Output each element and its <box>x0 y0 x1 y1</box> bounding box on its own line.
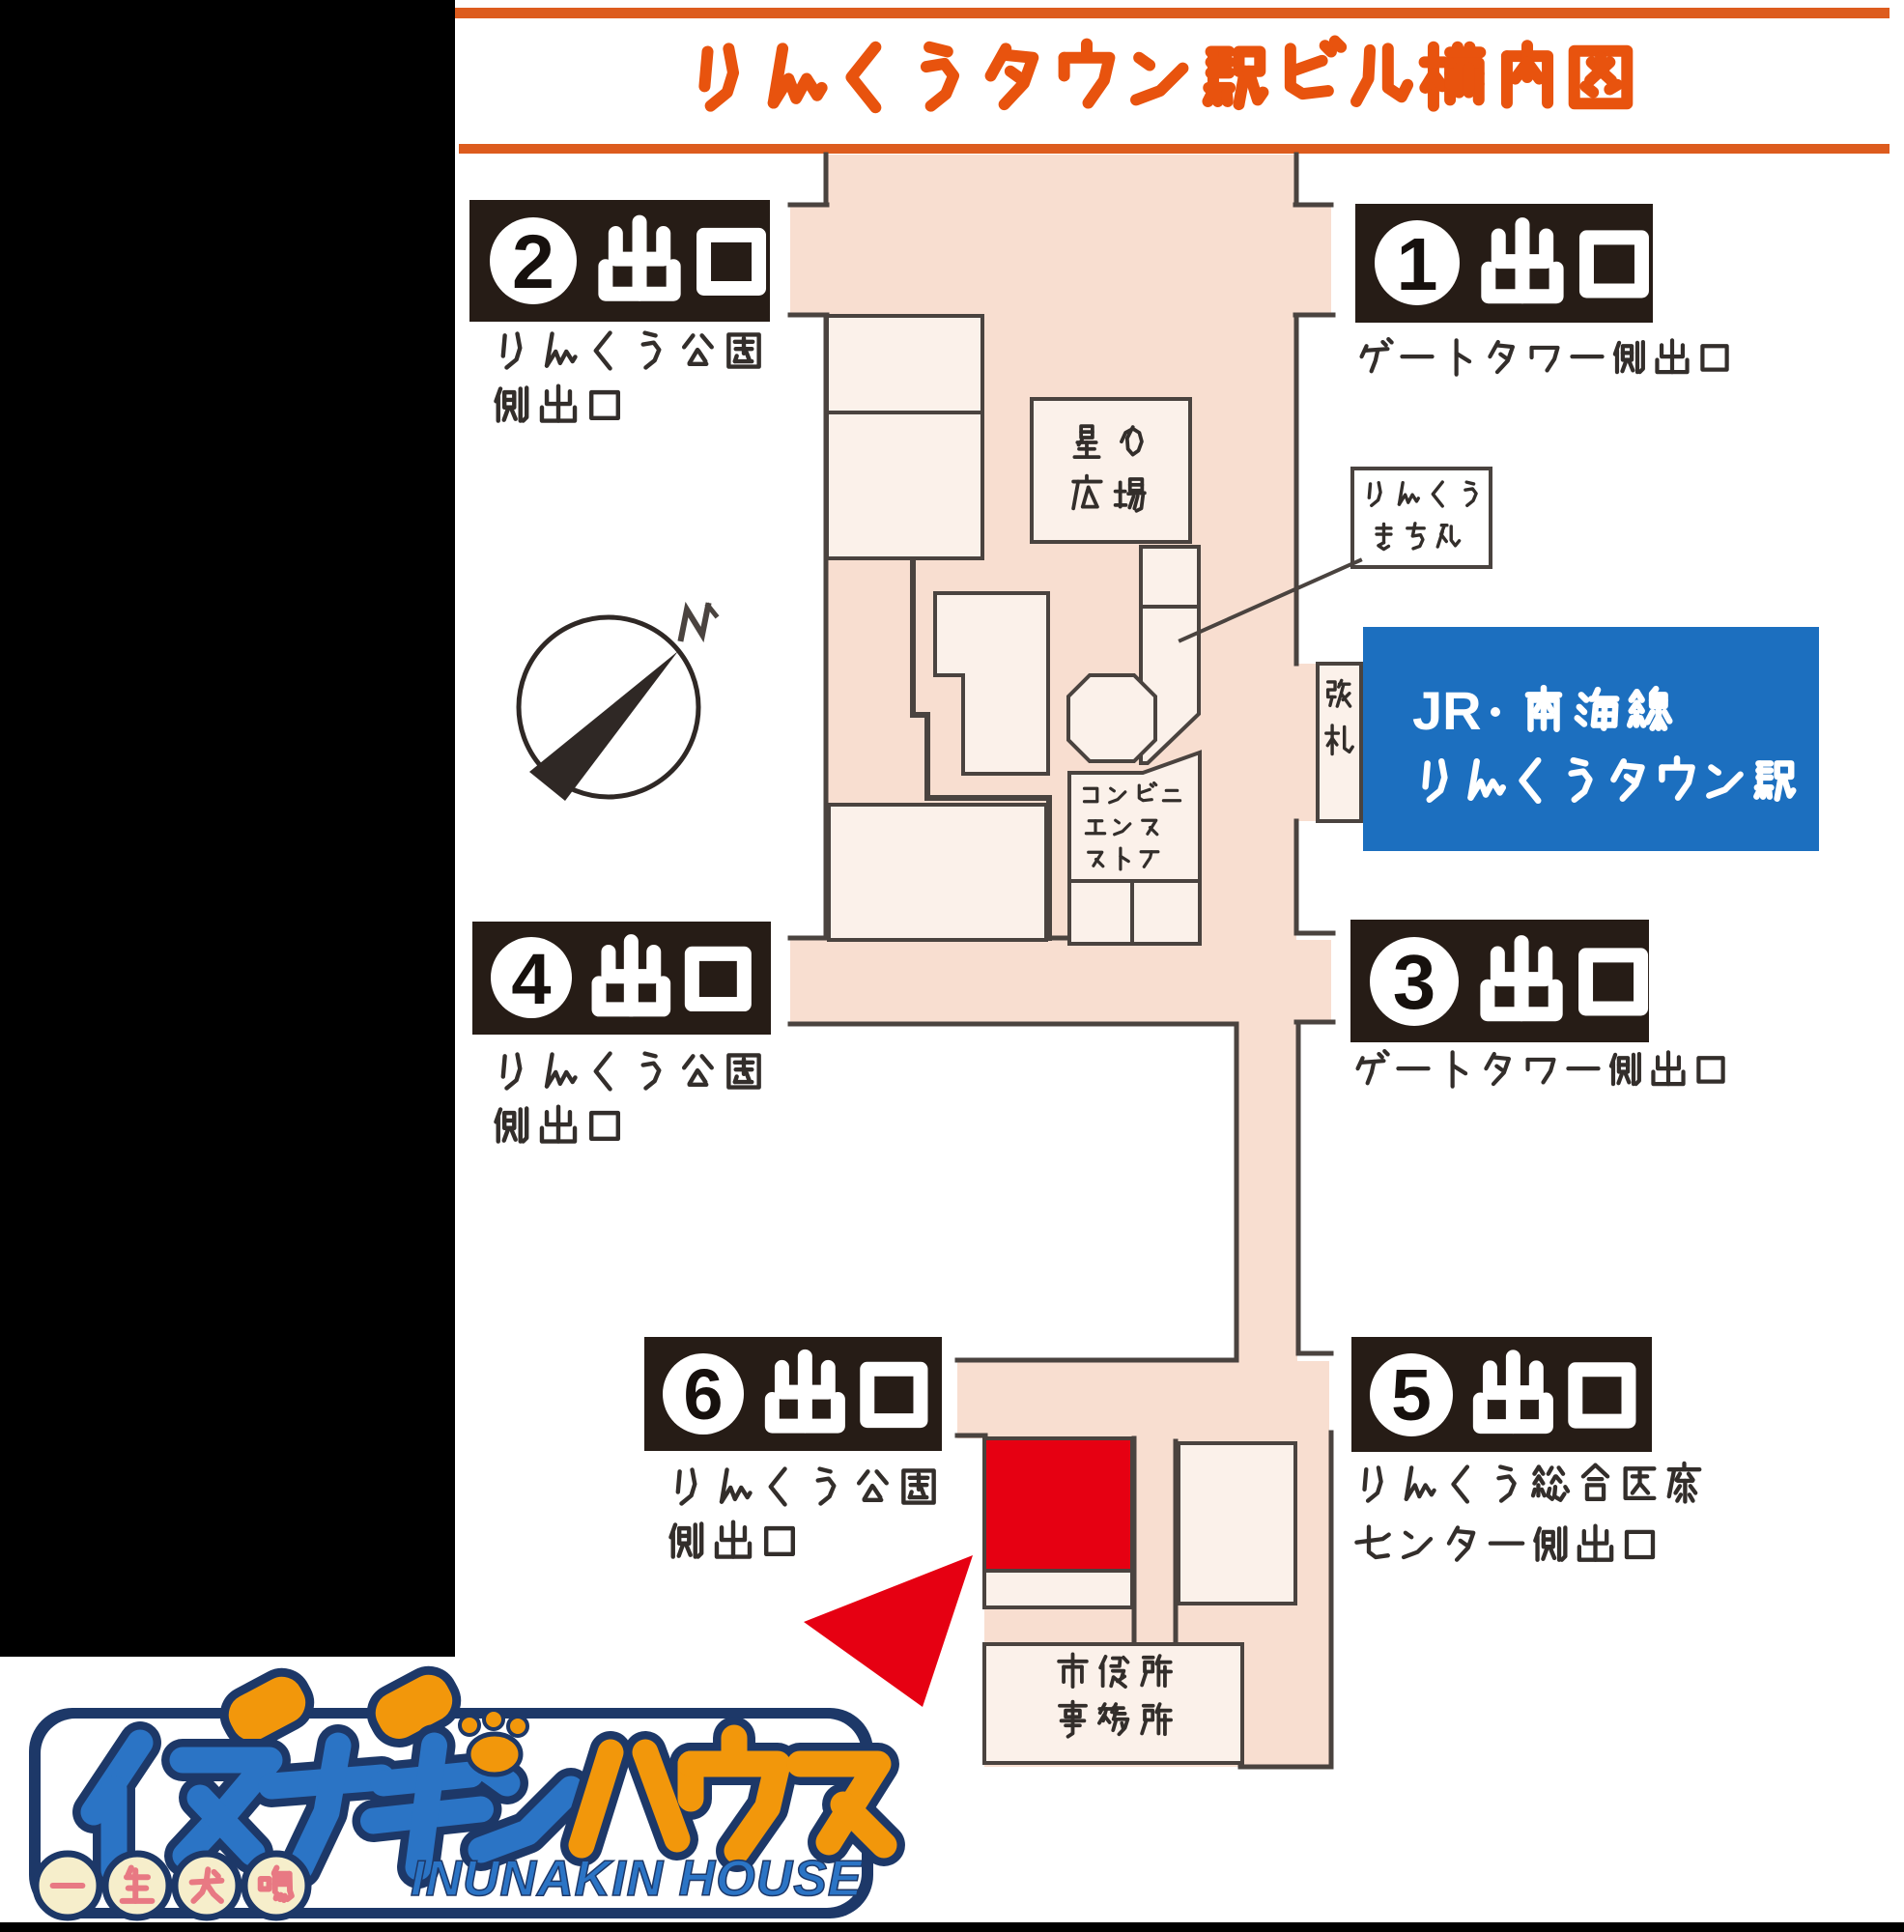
svg-text:4: 4 <box>511 939 551 1019</box>
svg-text:5: 5 <box>1391 1354 1432 1435</box>
svg-text:3: 3 <box>1393 939 1436 1025</box>
svg-text:1: 1 <box>1397 223 1438 306</box>
svg-text:JR: JR <box>1412 680 1482 741</box>
svg-text:INUNAKIN HOUSE: INUNAKIN HOUSE <box>411 1851 863 1907</box>
svg-text:2: 2 <box>512 218 554 304</box>
svg-text:6: 6 <box>683 1354 723 1435</box>
